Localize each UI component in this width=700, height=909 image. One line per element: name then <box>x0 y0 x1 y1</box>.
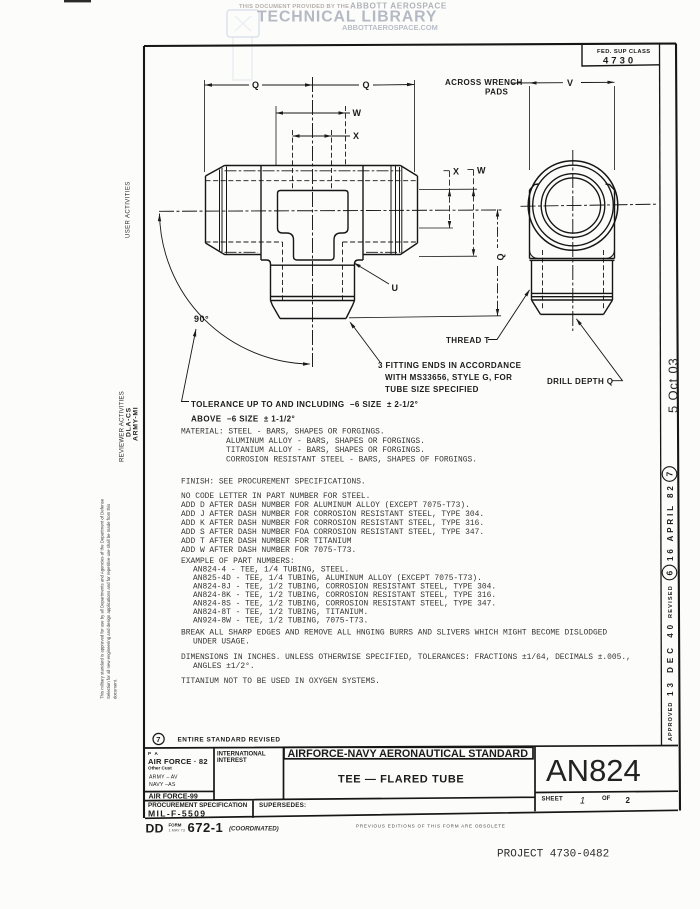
svg-text:90°: 90° <box>194 314 209 324</box>
svg-text:Q: Q <box>363 80 370 90</box>
svg-text:DIMENSIONS IN INCHES. UNLESS: DIMENSIONS IN INCHES. UNLESS OTHERWISE S… <box>181 653 631 662</box>
svg-text:X: X <box>353 131 359 141</box>
svg-text:TOLERANCE UP TO AND INCLUDING: TOLERANCE UP TO AND INCLUDING −6 SIZE ± … <box>191 400 418 409</box>
svg-text:16 APRIL 82: 16 APRIL 82 <box>666 483 675 561</box>
svg-text:DRILL DEPTH Q: DRILL DEPTH Q <box>547 377 613 386</box>
svg-text:REVISED: REVISED <box>668 585 674 618</box>
svg-text:ARMY – AV: ARMY – AV <box>149 775 178 781</box>
svg-text:AN824: AN824 <box>546 753 641 788</box>
svg-text:5 Oct 03: 5 Oct 03 <box>666 357 681 413</box>
svg-text:6: 6 <box>665 571 675 576</box>
svg-text:ADD T AFTER DASH NUMBER FOR TI: ADD T AFTER DASH NUMBER FOR TITANIUM <box>181 537 352 546</box>
svg-text:FED. SUP CLASS: FED. SUP CLASS <box>597 49 651 55</box>
svg-text:USER ACTIVITIES: USER ACTIVITIES <box>126 181 132 238</box>
svg-text:OF: OF <box>602 796 611 802</box>
svg-text:7: 7 <box>665 472 675 477</box>
svg-text:DLA-CS: DLA-CS <box>126 407 133 437</box>
svg-text:X: X <box>453 167 459 177</box>
svg-text:ENTIRE STANDARD REVISED: ENTIRE STANDARD REVISED <box>178 737 281 744</box>
svg-text:1: 1 <box>580 796 585 806</box>
svg-text:W: W <box>353 108 362 118</box>
svg-text:ARMY-MI: ARMY-MI <box>133 407 140 441</box>
svg-text:W: W <box>477 166 486 176</box>
svg-text:3 FITTING ENDS IN ACCORDANCE: 3 FITTING ENDS IN ACCORDANCE <box>378 361 522 370</box>
svg-text:CORROSION RESISTANT STEEL - BA: CORROSION RESISTANT STEEL - BARS, SHAPES… <box>226 456 477 465</box>
svg-text:REVIEWER ACTIVITIES: REVIEWER ACTIVITIES <box>119 391 126 462</box>
svg-text:INTEREST: INTEREST <box>217 758 247 764</box>
svg-text:ANGLES ±1/2°.: ANGLES ±1/2°. <box>193 662 255 671</box>
svg-text:ALUMINUM ALLOY - BARS, SHAPES: ALUMINUM ALLOY - BARS, SHAPES OR FORGING… <box>226 437 425 446</box>
svg-text:UNDER USAGE.: UNDER USAGE. <box>193 638 250 647</box>
svg-text:DD: DD <box>146 822 164 836</box>
svg-text:FORM: FORM <box>169 823 182 828</box>
svg-text:NO CODE LETTER IN PART NUMBER: NO CODE LETTER IN PART NUMBER FOR STEEL. <box>181 492 370 501</box>
svg-text:ABOVE −6 SIZE ± 1-1/2°: ABOVE −6 SIZE ± 1-1/2° <box>191 415 295 424</box>
svg-text:Q: Q <box>496 253 506 260</box>
svg-text:SUPERSEDES:: SUPERSEDES: <box>259 802 306 809</box>
svg-text:ADD J AFTER DASH NUMBER FOR CO: ADD J AFTER DASH NUMBER FOR CORROSION RE… <box>181 510 484 519</box>
svg-text:Q: Q <box>252 80 259 90</box>
svg-text:NAVY –AS: NAVY –AS <box>149 782 176 788</box>
svg-text:PROJECT 4730-0482: PROJECT 4730-0482 <box>497 849 609 861</box>
svg-text:1 MAY 73: 1 MAY 73 <box>169 829 185 833</box>
svg-text:ADD D AFTER DASH NUMBER FOR AL: ADD D AFTER DASH NUMBER FOR ALUMINUM ALL… <box>181 501 470 510</box>
svg-text:TEE — FLARED TUBE: TEE — FLARED TUBE <box>338 774 464 786</box>
svg-text:TITANIUM ALLOY - BARS, SHAPES: TITANIUM ALLOY - BARS, SHAPES OR FORGING… <box>226 446 425 455</box>
svg-text:7: 7 <box>156 735 160 744</box>
svg-text:ABBOTTAEROSPACE.COM: ABBOTTAEROSPACE.COM <box>342 23 438 32</box>
svg-text:Other Cust: Other Cust <box>148 766 172 771</box>
svg-text:SHEET: SHEET <box>542 797 564 803</box>
svg-text:13 DEC 40: 13 DEC 40 <box>666 621 675 696</box>
svg-text:2: 2 <box>626 796 631 805</box>
svg-text:ADD S AFTER DASH NUMBER FOA CO: ADD S AFTER DASH NUMBER FOA CORROSION RE… <box>181 528 484 537</box>
svg-text:THREAD T: THREAD T <box>446 336 490 345</box>
svg-text:V: V <box>567 78 573 88</box>
svg-text:APPROVED: APPROVED <box>668 702 674 741</box>
svg-text:FINISH: SEE PROCUREMENT SPECI: FINISH: SEE PROCUREMENT SPECIFICATIONS. <box>181 478 366 487</box>
svg-text:P A: P A <box>148 751 159 756</box>
svg-text:AIRFORCE-NAVY AERONAUTICAL STA: AIRFORCE-NAVY AERONAUTICAL STANDARD <box>288 748 529 760</box>
svg-text:document.: document. <box>113 679 118 699</box>
svg-text:ADD K AFTER DASH NUMBER FOR CO: ADD K AFTER DASH NUMBER FOR CORROSION RE… <box>181 519 484 528</box>
svg-text:MATERIAL: STEEL - BARS, SHAPES: MATERIAL: STEEL - BARS, SHAPES OR FORGIN… <box>181 428 385 437</box>
svg-text:(COORDINATED): (COORDINATED) <box>229 826 279 833</box>
svg-text:BREAK ALL SHARP EDGES AND REMO: BREAK ALL SHARP EDGES AND REMOVE ALL HNG… <box>181 629 607 638</box>
svg-text:INTERNATIONAL: INTERNATIONAL <box>217 751 266 757</box>
svg-text:This military standard is appr: This military standard is approved for u… <box>100 498 105 699</box>
svg-text:AIR FORCE · 82: AIR FORCE · 82 <box>148 757 208 766</box>
svg-text:4730: 4730 <box>603 56 636 67</box>
svg-text:WITH MS33656, STYLE G, FOR: WITH MS33656, STYLE G, FOR <box>385 373 512 382</box>
svg-text:PADS: PADS <box>485 88 508 97</box>
svg-text:AIR FORCE-99: AIR FORCE-99 <box>149 792 198 800</box>
svg-text:U: U <box>392 283 399 293</box>
svg-text:ACROSS WRENCH: ACROSS WRENCH <box>445 78 523 87</box>
svg-text:MIL-F-5509: MIL-F-5509 <box>148 809 206 819</box>
svg-text:TITANIUM NOT TO BE USED IN OXY: TITANIUM NOT TO BE USED IN OXYGEN SYSTEM… <box>181 677 380 686</box>
svg-text:PREVIOUS EDITIONS OF THIS FORM: PREVIOUS EDITIONS OF THIS FORM ARE OBSOL… <box>356 824 506 829</box>
svg-text:AN924-8W - TEE, 1/2 TUBING, 70: AN924-8W - TEE, 1/2 TUBING, 7075-T73. <box>193 617 368 626</box>
svg-text:TUBE SIZE SPECIFIED: TUBE SIZE SPECIFIED <box>385 385 479 394</box>
svg-text:672-1: 672-1 <box>188 820 224 835</box>
svg-text:ADD W AFTER DASH NUMBER FOR 70: ADD W AFTER DASH NUMBER FOR 7075-T73. <box>181 546 356 555</box>
svg-text:Selection for all new engineer: Selection for all new engineering and de… <box>106 504 111 699</box>
